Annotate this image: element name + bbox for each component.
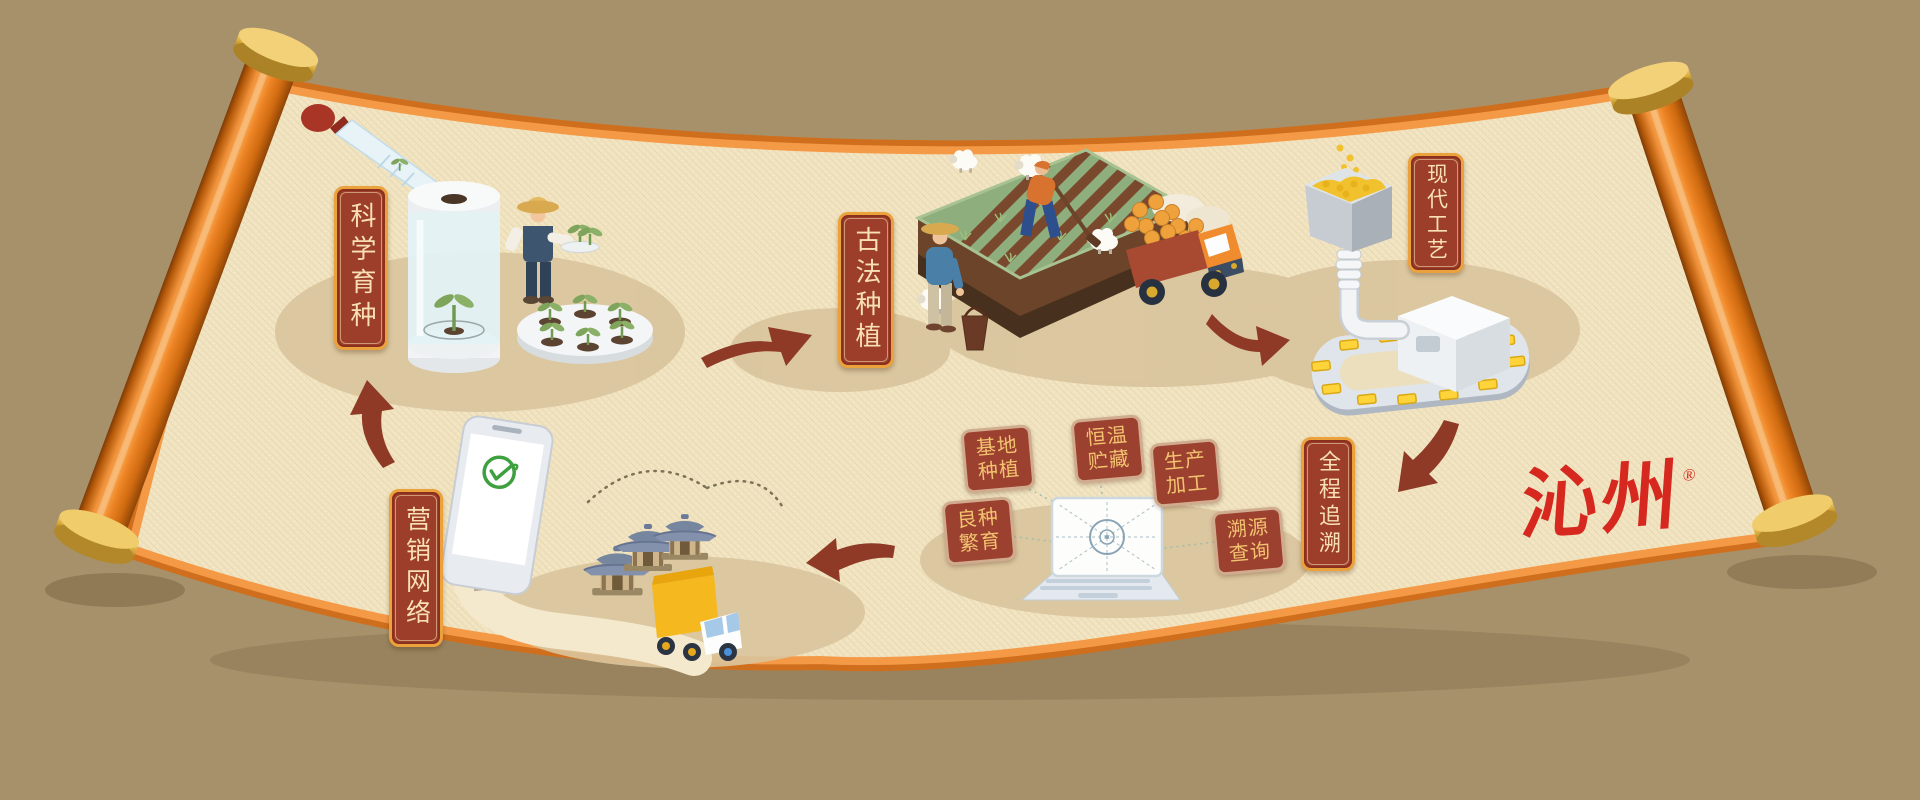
- station-label-yingxiao-wangluo: 营销网络: [389, 489, 443, 647]
- brand-logo: 沁州®: [1518, 432, 1698, 555]
- station-label-xiandai-gongyi: 现代工艺: [1408, 153, 1464, 273]
- station-label-quancheng-zhuisu: 全程追溯: [1301, 437, 1355, 571]
- trace-tag-suyuan-chaxun: 溯源查询: [1211, 506, 1286, 576]
- scroll-scene: [0, 0, 1920, 800]
- station-label-kexue-yuzhong: 科学育种: [334, 186, 388, 350]
- trace-tag-liangzhong-fanyu: 良种繁育: [941, 496, 1016, 566]
- incubator-icon: [408, 181, 500, 373]
- trace-tag-shengchan-jiagong: 生产加工: [1149, 438, 1222, 508]
- scroll-infographic: 科学育种 古法种植 现代工艺 全程追溯 营销网络 基地种植 良种繁育 恒温贮藏 …: [0, 0, 1920, 800]
- trace-tag-jidi-zhongzhi: 基地种植: [960, 424, 1035, 494]
- registered-mark: ®: [1682, 465, 1696, 485]
- trace-tag-hengwen-zhucang: 恒温贮藏: [1070, 414, 1145, 484]
- station-label-gufa-zhongzhi: 古法种植: [838, 212, 894, 368]
